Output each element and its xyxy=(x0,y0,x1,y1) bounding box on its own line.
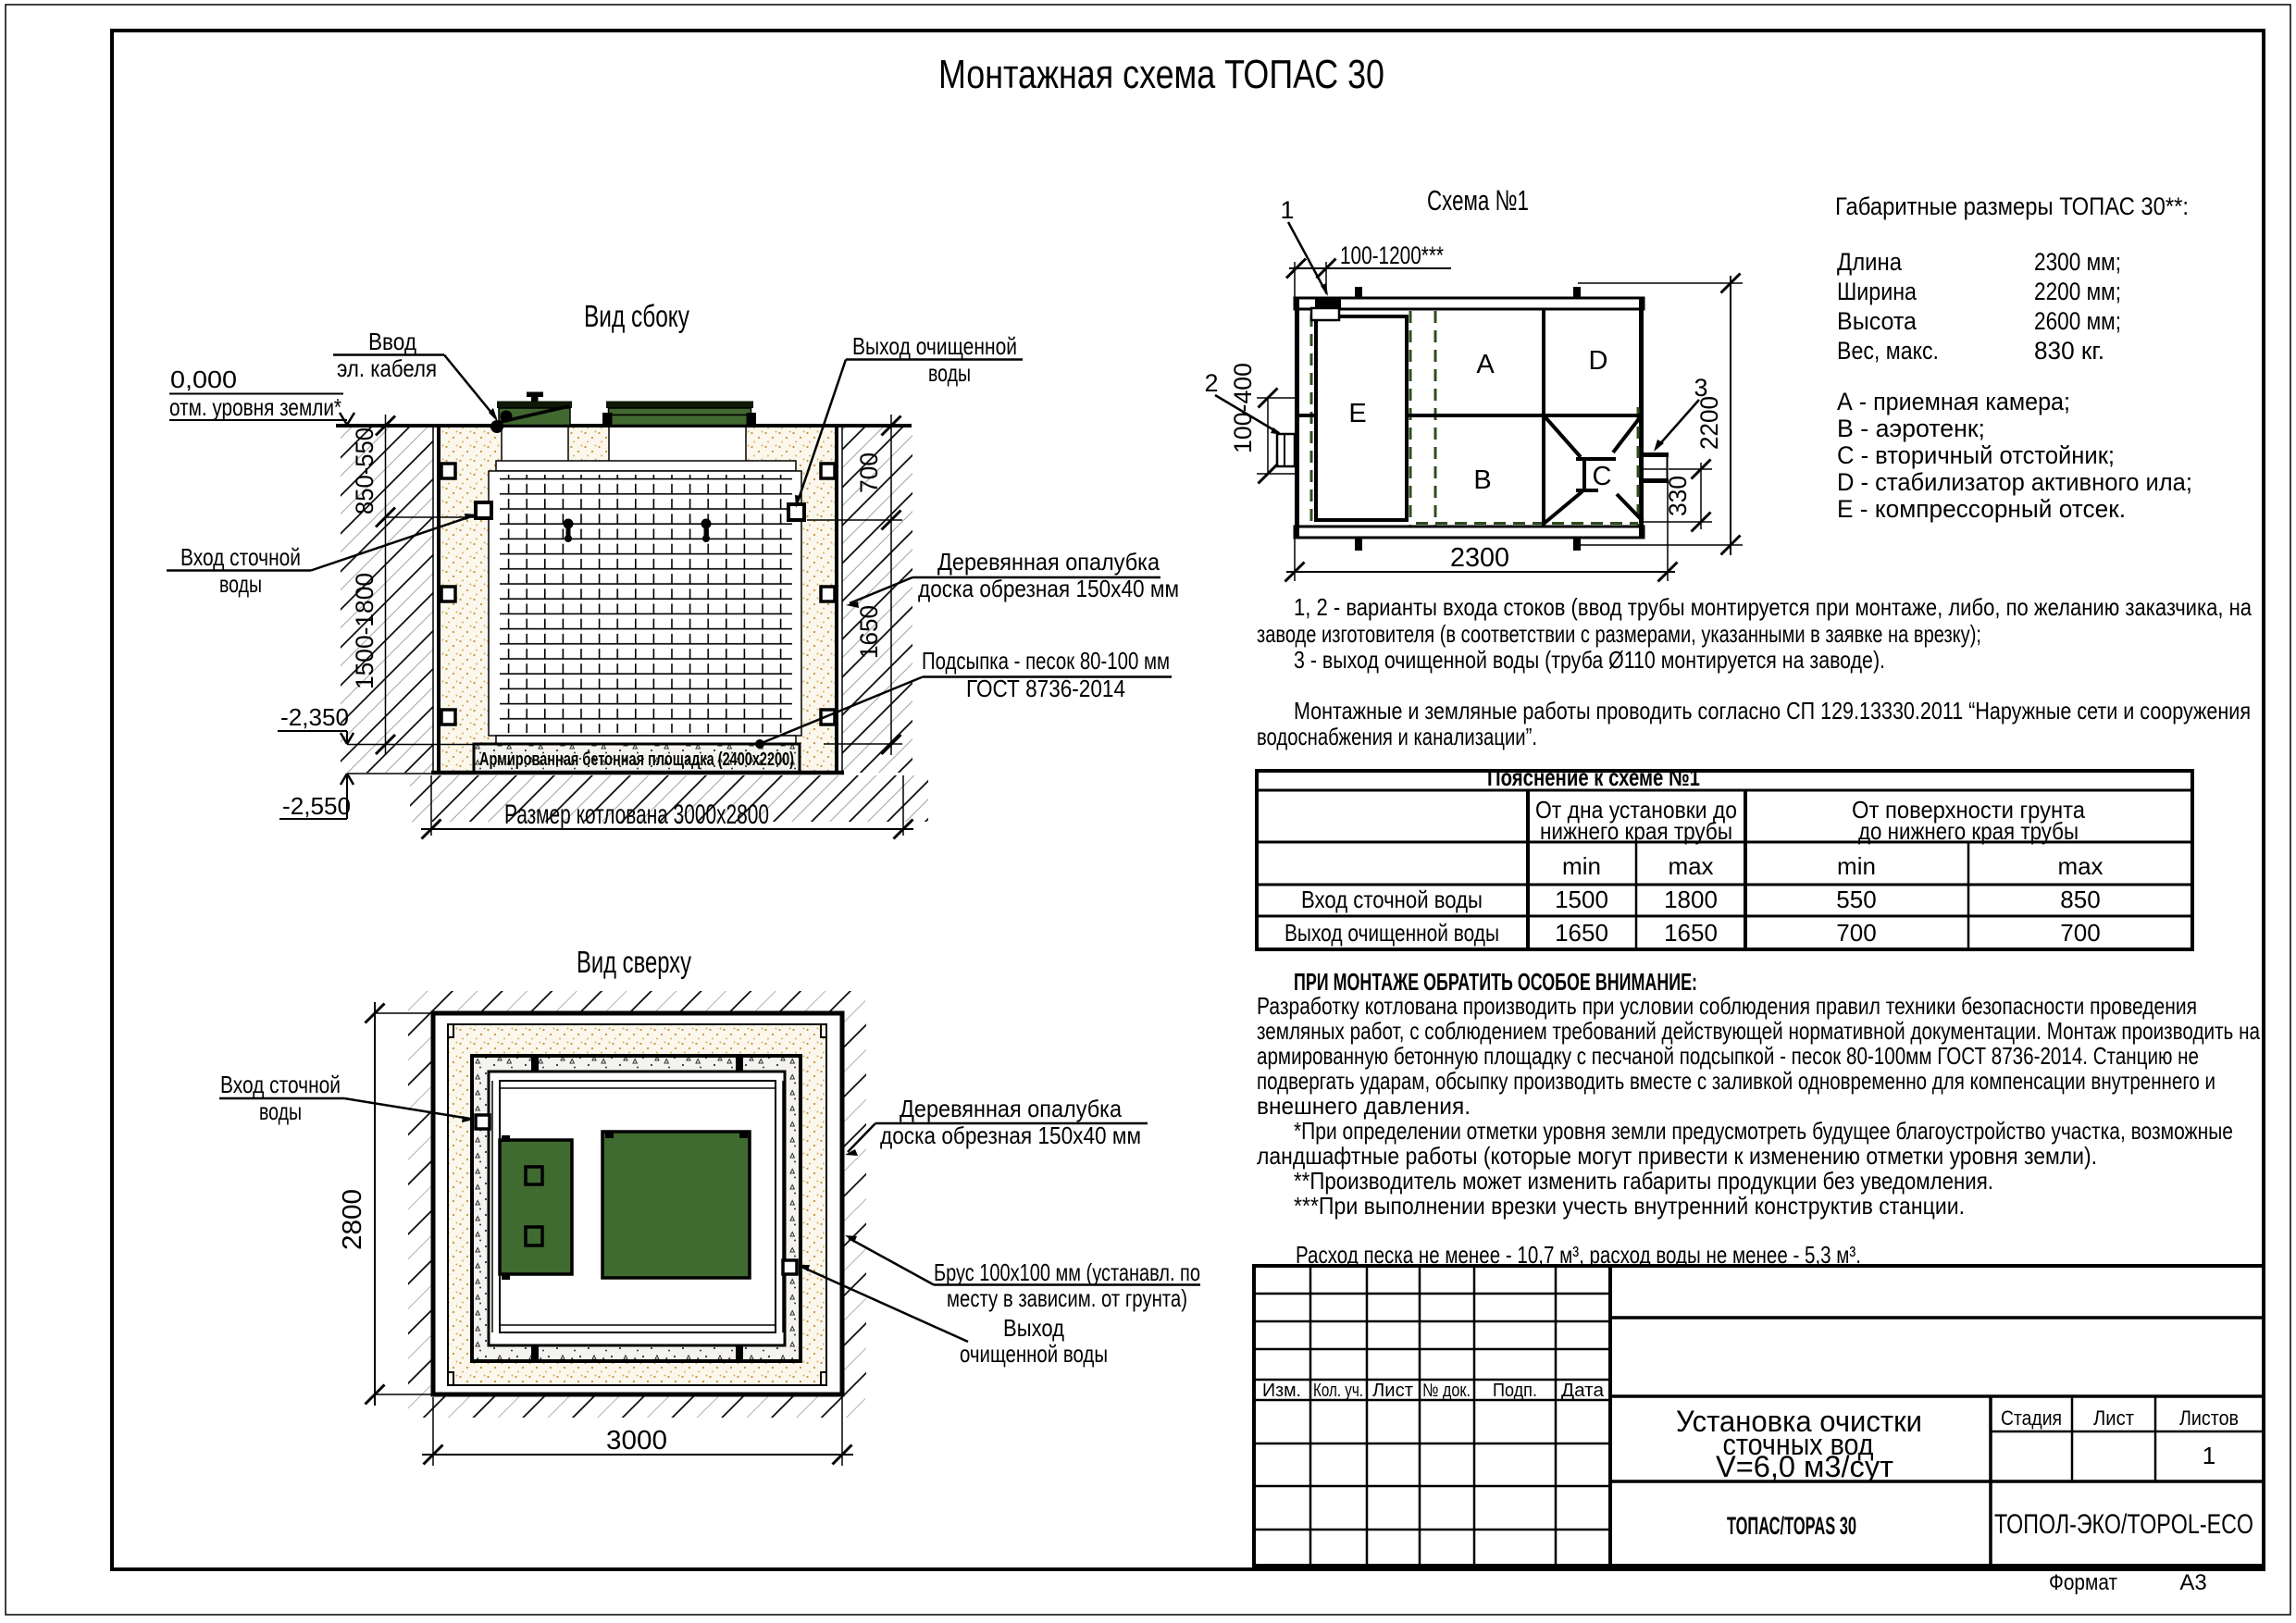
svg-text:Габаритные размеры ТОПАС 30**:: Габаритные размеры ТОПАС 30**: xyxy=(1835,192,2189,220)
svg-text:Вид сверху: Вид сверху xyxy=(577,945,691,979)
svg-text:Дата: Дата xyxy=(1561,1381,1605,1401)
svg-text:доска обрезная 150х40 мм: доска обрезная 150х40 мм xyxy=(918,575,1179,602)
svg-text:2300: 2300 xyxy=(1450,543,1509,573)
svg-text:земляных работ, с соблюдением: земляных работ, с соблюдением требований… xyxy=(1257,1017,2260,1045)
svg-text:1: 1 xyxy=(1280,196,1294,224)
svg-text:D: D xyxy=(1589,346,1608,376)
svg-text:Высота: Высота xyxy=(1837,307,1917,335)
svg-text:ТОПОЛ-ЭКО/TOPOL-ECO: ТОПОЛ-ЭКО/TOPOL-ECO xyxy=(1994,1509,2253,1540)
svg-text:100-400: 100-400 xyxy=(1229,363,1257,453)
svg-text:3000: 3000 xyxy=(606,1426,667,1456)
svg-text:Монтажные и земляные работы пр: Монтажные и земляные работы проводить со… xyxy=(1294,697,2251,725)
svg-text:700: 700 xyxy=(2060,919,2100,947)
svg-text:Вес, макс.: Вес, макс. xyxy=(1837,337,1939,365)
svg-text:Лист: Лист xyxy=(2093,1406,2134,1430)
svg-text:Брус 100х100 мм (устанавл. по: Брус 100х100 мм (устанавл. по xyxy=(934,1258,1200,1286)
svg-text:Схема №1: Схема №1 xyxy=(1427,184,1529,217)
svg-text:850-550: 850-550 xyxy=(351,427,379,514)
svg-text:нижнего края трубы: нижнего края трубы xyxy=(1540,817,1732,845)
svg-text:2: 2 xyxy=(1204,369,1218,397)
svg-text:*При определении отметки уровн: *При определении отметки уровня земли пр… xyxy=(1294,1117,2233,1145)
svg-text:1650: 1650 xyxy=(1664,919,1718,947)
svg-text:3 - выход очищенной воды (труб: 3 - выход очищенной воды (труба Ø110 мон… xyxy=(1294,646,1885,674)
svg-text:очищенной воды: очищенной воды xyxy=(960,1340,1108,1368)
svg-text:**Производитель может изменить: **Производитель может изменить габариты … xyxy=(1294,1167,1993,1195)
svg-text:Вход сточной воды: Вход сточной воды xyxy=(1301,886,1483,913)
svg-text:Стадия: Стадия xyxy=(2001,1406,2062,1430)
svg-text:100-1200***: 100-1200*** xyxy=(1340,242,1444,269)
svg-text:2200 мм;: 2200 мм; xyxy=(2034,278,2121,305)
svg-text:Вид сбоку: Вид сбоку xyxy=(584,299,689,333)
svg-text:С - вторичный отстойник;: С - вторичный отстойник; xyxy=(1837,441,2115,469)
svg-text:2300 мм;: 2300 мм; xyxy=(2034,248,2121,276)
svg-text:ГОСТ 8736-2014: ГОСТ 8736-2014 xyxy=(966,675,1125,702)
svg-text:Вход сточной: Вход сточной xyxy=(220,1071,341,1098)
svg-text:850: 850 xyxy=(2060,886,2100,913)
svg-text:E: E xyxy=(1348,399,1366,428)
svg-text:ландшафтные работы (которые мо: ландшафтные работы (которые могут привес… xyxy=(1257,1142,2097,1170)
svg-text:Пояснение к схеме №1: Пояснение к схеме №1 xyxy=(1487,763,1700,791)
svg-text:А3: А3 xyxy=(2179,1570,2206,1595)
svg-text:700: 700 xyxy=(1836,919,1876,947)
svg-text:Лист: Лист xyxy=(1372,1381,1413,1401)
svg-text:D - стабилизатор активного ила: D - стабилизатор активного ила; xyxy=(1837,468,2192,496)
svg-text:0,000: 0,000 xyxy=(170,365,237,393)
svg-text:Деревянная опалубка: Деревянная опалубка xyxy=(900,1095,1122,1122)
svg-text:Подсыпка - песок 80-100 мм: Подсыпка - песок 80-100 мм xyxy=(922,647,1170,675)
svg-text:воды: воды xyxy=(259,1097,302,1125)
svg-text:Армированная бетонная площадка: Армированная бетонная площадка (2400х220… xyxy=(479,750,794,770)
svg-text:Выход очищенной: Выход очищенной xyxy=(852,332,1017,360)
svg-text:Длина: Длина xyxy=(1837,248,1903,276)
svg-text:1500: 1500 xyxy=(1555,886,1608,913)
svg-text:Выход очищенной воды: Выход очищенной воды xyxy=(1285,919,1499,947)
svg-text:Е - компрессорный отсек.: Е - компрессорный отсек. xyxy=(1837,495,2126,523)
svg-text:водоснабжения и канализации”.: водоснабжения и канализации”. xyxy=(1257,723,1537,750)
svg-text:Подп.: Подп. xyxy=(1493,1381,1537,1401)
svg-text:доска обрезная 150х40 мм: доска обрезная 150х40 мм xyxy=(880,1121,1141,1149)
svg-text:***При выполнении врезки учест: ***При выполнении врезки учесть внутренн… xyxy=(1294,1192,1965,1220)
svg-text:Монтажная схема ТОПАС 30: Монтажная схема ТОПАС 30 xyxy=(938,52,1384,97)
svg-text:1650: 1650 xyxy=(1555,919,1608,947)
svg-text:max: max xyxy=(2057,852,2103,880)
svg-text:Кол. уч.: Кол. уч. xyxy=(1313,1381,1363,1401)
svg-text:550: 550 xyxy=(1836,886,1876,913)
svg-text:воды: воды xyxy=(928,359,971,387)
svg-text:Разработку котлована производи: Разработку котлована производить при усл… xyxy=(1257,992,2197,1020)
svg-text:830 кг.: 830 кг. xyxy=(2034,337,2104,365)
svg-text:2800: 2800 xyxy=(338,1189,367,1250)
svg-text:месту в зависим. от грунта): месту в зависим. от грунта) xyxy=(947,1284,1187,1312)
svg-text:армированную бетонную площадку: армированную бетонную площадку с песчано… xyxy=(1257,1042,2199,1070)
svg-text:Деревянная опалубка: Деревянная опалубка xyxy=(937,548,1160,576)
svg-text:ТОПАС/TOPAS 30: ТОПАС/TOPAS 30 xyxy=(1727,1512,1856,1540)
svg-text:700: 700 xyxy=(855,452,883,493)
svg-text:заводе изготовителя (в соответ: заводе изготовителя (в соответствии с ра… xyxy=(1257,620,1981,648)
svg-text:Выход: Выход xyxy=(1003,1314,1064,1342)
svg-text:эл. кабеля: эл. кабеля xyxy=(337,354,437,382)
svg-text:1800: 1800 xyxy=(1664,886,1718,913)
svg-text:Ширина: Ширина xyxy=(1837,278,1917,305)
svg-text:B: B xyxy=(1473,465,1491,495)
svg-text:Изм.: Изм. xyxy=(1262,1381,1301,1401)
svg-text:отм. уровня земли*: отм. уровня земли* xyxy=(169,393,341,421)
svg-text:В - аэротенк;: В - аэротенк; xyxy=(1837,415,1985,442)
svg-text:V=6,0 м3/сут: V=6,0 м3/сут xyxy=(1716,1450,1893,1483)
svg-text:А - приемная камера;: А - приемная камера; xyxy=(1837,388,2070,415)
svg-text:Формат: Формат xyxy=(2049,1570,2117,1595)
svg-text:2600 мм;: 2600 мм; xyxy=(2034,307,2121,335)
svg-text:A: A xyxy=(1476,350,1495,379)
svg-text:C: C xyxy=(1593,462,1612,491)
svg-text:2200: 2200 xyxy=(1695,396,1723,450)
svg-text:1500-1800: 1500-1800 xyxy=(351,573,379,689)
svg-text:1650: 1650 xyxy=(855,605,883,659)
svg-text:1: 1 xyxy=(2203,1442,2215,1469)
svg-text:max: max xyxy=(1668,852,1713,880)
svg-text:-2,550: -2,550 xyxy=(282,792,351,820)
svg-text:min: min xyxy=(1562,852,1601,880)
svg-text:подвергать ударам, обсыпку про: подвергать ударам, обсыпку производить в… xyxy=(1257,1067,2215,1095)
svg-text:до нижнего края трубы: до нижнего края трубы xyxy=(1858,817,2079,845)
svg-text:-2,350: -2,350 xyxy=(280,703,349,731)
svg-text:внешнего давления.: внешнего давления. xyxy=(1257,1092,1471,1120)
svg-text:Ввод: Ввод xyxy=(368,328,416,355)
svg-text:min: min xyxy=(1837,852,1876,880)
svg-text:№ док.: № док. xyxy=(1422,1381,1471,1401)
svg-text:воды: воды xyxy=(219,570,262,598)
svg-text:Вход сточной: Вход сточной xyxy=(180,543,301,571)
svg-text:1, 2 - варианты входа стоков: 1, 2 - варианты входа стоков (ввод трубы… xyxy=(1294,593,2252,621)
svg-text:Размер котлована 3000х2800: Размер котлована 3000х2800 xyxy=(504,799,769,830)
svg-text:Листов: Листов xyxy=(2179,1406,2239,1430)
